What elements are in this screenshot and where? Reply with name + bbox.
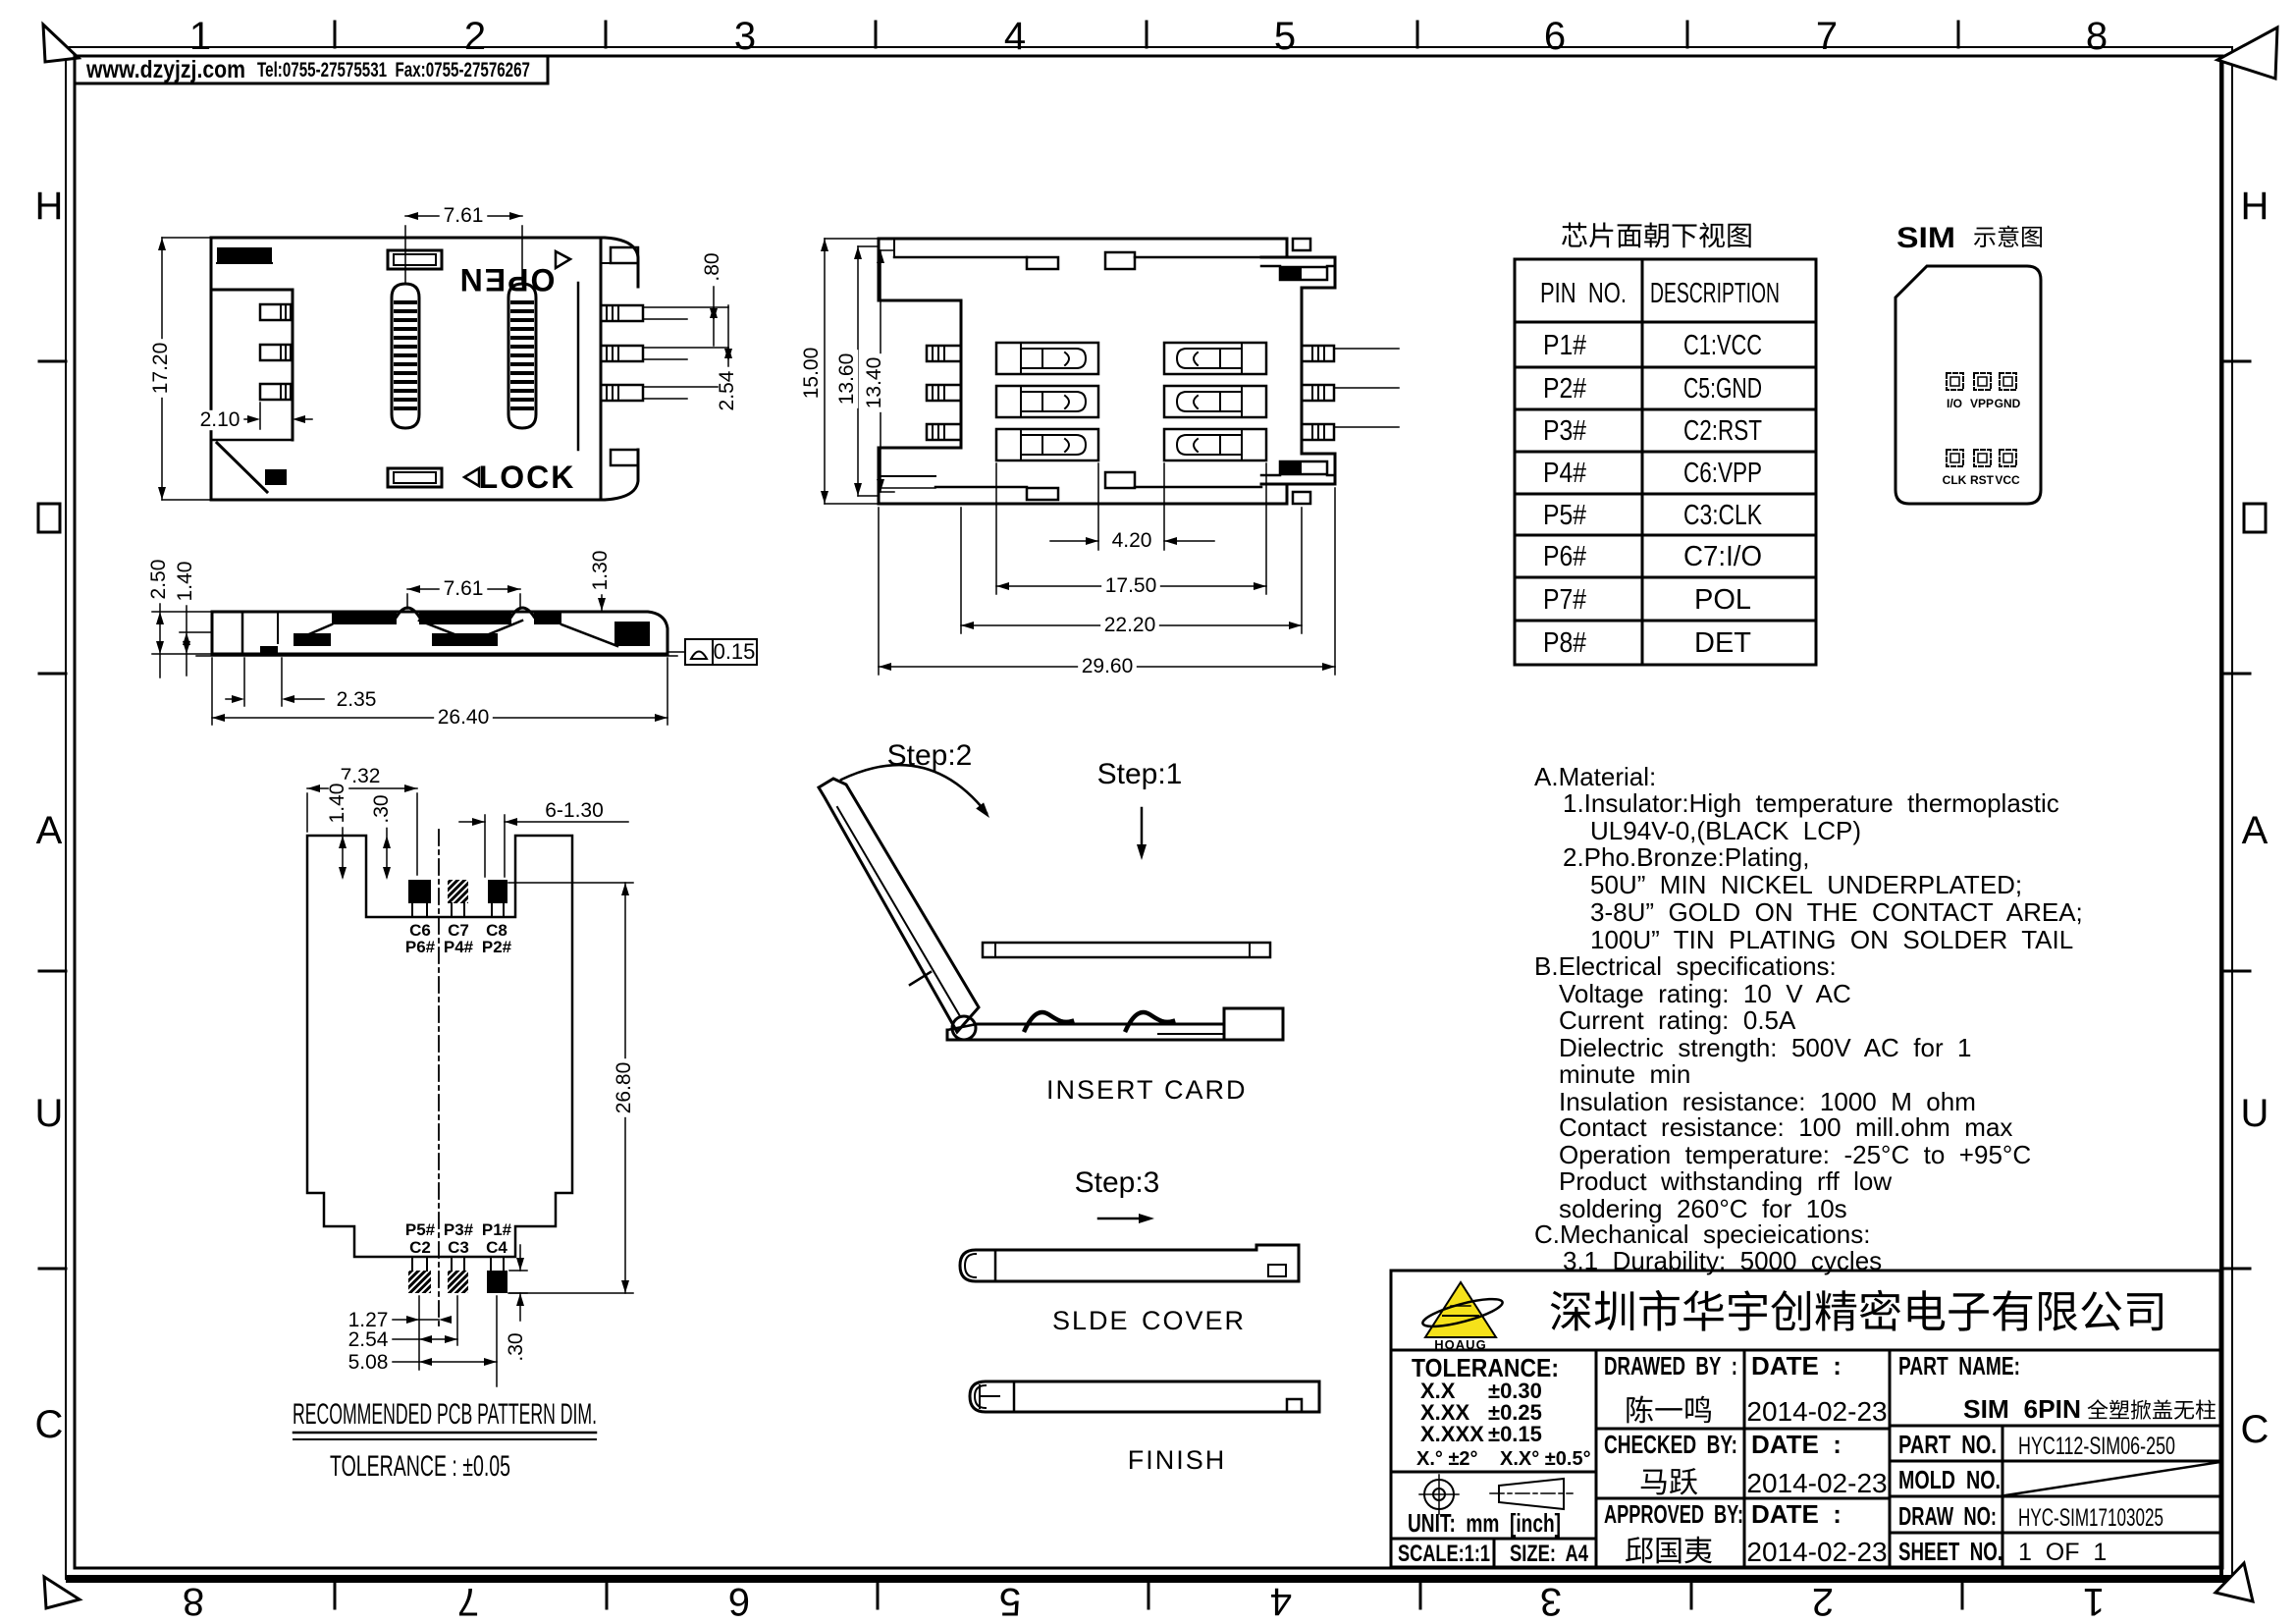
svg-text:APPROVED BY:: APPROVED BY: [1604,1499,1743,1529]
svg-text:3-8U” GOLD ON THE CONTACT: 3-8U” GOLD ON THE CONTACT AREA; [1590,897,2083,927]
svg-text:Product withstanding rff lo: Product withstanding rff low [1559,1166,1892,1196]
svg-text:U: U [35,1092,64,1135]
svg-text:CARD: CARD [1164,1075,1248,1105]
svg-text:3: 3 [734,15,756,58]
svg-text:7.61: 7.61 [444,204,484,227]
svg-text:C3:CLK: C3:CLK [1683,500,1763,531]
svg-text:LOCK: LOCK [479,460,576,495]
svg-text:OPEN: OPEN [458,262,556,298]
svg-text:A.Material:: A.Material: [1534,762,1656,791]
svg-text:PART NAME:: PART NAME: [1898,1351,2020,1380]
svg-text:5.08: 5.08 [348,1351,389,1374]
svg-text:1.30: 1.30 [589,551,612,591]
svg-text:PART NO.: PART NO. [1898,1430,1997,1459]
svg-text:2014-02-23: 2014-02-23 [1746,1537,1887,1567]
svg-text:POL: POL [1694,584,1751,616]
svg-text:Step:3: Step:3 [1075,1166,1160,1199]
svg-text:3: 3 [1540,1580,1562,1623]
svg-text:6: 6 [1544,15,1566,58]
svg-text:2: 2 [464,15,486,58]
svg-text:50U” MIN NICKEL UNDERPLATED: 50U” MIN NICKEL UNDERPLATED; [1590,870,2022,899]
svg-text:SIZE: A4: SIZE: A4 [1510,1541,1588,1567]
svg-text:C1:VCC: C1:VCC [1683,330,1762,361]
svg-text:17.50: 17.50 [1105,574,1157,597]
svg-text:4.20: 4.20 [1112,529,1152,552]
svg-text:UL94V-0,(BLACK LCP): UL94V-0,(BLACK LCP) [1590,816,1861,845]
svg-text:1.40: 1.40 [326,784,348,824]
svg-text:13.40: 13.40 [863,357,885,409]
svg-text:SIM 6PIN: SIM 6PIN [1963,1394,2081,1424]
svg-text:6-1.30: 6-1.30 [545,799,604,822]
svg-text:TOLERANCE : ±0.05: TOLERANCE : ±0.05 [330,1450,510,1483]
svg-text:A: A [2242,809,2269,852]
svg-text:P8#: P8# [1543,627,1586,659]
svg-text:26.40: 26.40 [438,706,490,729]
svg-text:X.° ±2°: X.° ±2° [1416,1448,1478,1470]
svg-text:P5#: P5# [1543,500,1586,531]
svg-text:8: 8 [2086,15,2108,58]
svg-text:HOAUG: HOAUG [1434,1337,1486,1352]
svg-text:5: 5 [999,1580,1021,1623]
svg-text:H: H [35,185,64,228]
svg-text:HYC112-SIM06-250: HYC112-SIM06-250 [2018,1433,2175,1460]
svg-text:H: H [2241,185,2269,228]
svg-text:P3#: P3# [444,1220,474,1239]
svg-text:6: 6 [728,1580,750,1623]
svg-text:P5#: P5# [405,1220,436,1239]
svg-text:15.00: 15.00 [800,348,823,400]
svg-text:C3: C3 [448,1238,469,1257]
svg-text:2.35: 2.35 [337,688,377,711]
svg-text:X.X° ±0.5°: X.X° ±0.5° [1500,1448,1591,1470]
svg-text:GND: GND [1995,397,2021,410]
svg-text:Dielectric strength: 500V A: Dielectric strength: 500V AC for 1 [1559,1033,1972,1062]
svg-text:www.dzyjzj.com: www.dzyjzj.com [85,56,245,83]
svg-text:DRAWED BY :: DRAWED BY : [1604,1351,1737,1380]
svg-text:4: 4 [1270,1580,1292,1623]
svg-text:2: 2 [1812,1580,1834,1623]
svg-text:P6#: P6# [1543,541,1586,572]
svg-text:SCALE:1:1: SCALE:1:1 [1398,1541,1490,1567]
svg-text:26.80: 26.80 [613,1062,635,1114]
svg-text:Current rating: 0.5A: Current rating: 0.5A [1559,1005,1796,1035]
svg-text:DESCRIPTION: DESCRIPTION [1650,278,1780,309]
svg-text:C.Mechanical specieications:: C.Mechanical specieications: [1534,1219,1871,1249]
svg-text:I/O: I/O [1947,397,1962,410]
svg-text:X.XXX: X.XXX [1420,1422,1484,1446]
svg-text:DRAW NO:: DRAW NO: [1898,1501,1997,1531]
svg-text:7: 7 [1816,15,1838,58]
svg-text:P6#: P6# [405,938,436,956]
svg-text:VPP: VPP [1970,397,1994,410]
svg-text:P1#: P1# [482,1220,512,1239]
svg-text:CLK: CLK [1943,473,1967,487]
svg-text:1: 1 [189,15,211,58]
svg-text:INSERT: INSERT [1046,1075,1155,1105]
svg-text:HYC-SIM17103025: HYC-SIM17103025 [2018,1504,2163,1532]
svg-text:4: 4 [1004,15,1026,58]
svg-text:C: C [2241,1408,2269,1451]
svg-text:17.20: 17.20 [149,343,172,395]
svg-text:2.54: 2.54 [716,370,738,410]
svg-text:2014-02-23: 2014-02-23 [1746,1396,1887,1427]
svg-text:2014-02-23: 2014-02-23 [1746,1468,1887,1498]
svg-text:1.Insulator:High temperature: 1.Insulator:High temperature thermoplast… [1563,788,2059,818]
svg-text:SIM: SIM [1896,222,1955,254]
svg-text:SHEET NO.: SHEET NO. [1898,1537,2002,1566]
svg-text:COVER: COVER [1142,1306,1246,1335]
svg-text:minute min: minute min [1559,1059,1690,1089]
svg-text:P3#: P3# [1543,415,1586,447]
svg-text:1 OF 1: 1 OF 1 [2018,1539,2107,1566]
svg-text:C: C [35,1403,64,1446]
svg-text:Step:1: Step:1 [1097,758,1183,790]
svg-text:8: 8 [183,1580,204,1623]
svg-text:RECOMMENDED PCB PATTERN DIM.: RECOMMENDED PCB PATTERN DIM. [293,1398,597,1431]
svg-text:C2: C2 [409,1238,431,1257]
svg-text:C4: C4 [486,1238,507,1257]
svg-text:UNIT: mm [inch]: UNIT: mm [inch] [1408,1508,1561,1538]
svg-text:7: 7 [457,1580,479,1623]
svg-text:DATE :: DATE : [1751,1499,1842,1529]
svg-text:DATE :: DATE : [1751,1351,1842,1380]
svg-text:A: A [36,809,63,852]
svg-text:C7:I/O: C7:I/O [1683,541,1762,572]
svg-text:13.60: 13.60 [835,353,858,406]
svg-text:SLDE: SLDE [1052,1306,1130,1335]
svg-text:Operation temperature: -25°C: Operation temperature: -25°C to +95°C [1559,1140,2031,1169]
svg-text:.80: .80 [701,252,723,281]
svg-text:±0.15: ±0.15 [1488,1422,1542,1446]
svg-text:C2:RST: C2:RST [1683,415,1762,447]
svg-text:B.Electrical specifications:: B.Electrical specifications: [1534,951,1837,981]
svg-text:C5:GND: C5:GND [1683,373,1762,405]
svg-text:2.54: 2.54 [348,1328,389,1351]
svg-text:FINISH: FINISH [1128,1445,1227,1475]
svg-text:DET: DET [1694,627,1751,659]
svg-text:5: 5 [1274,15,1296,58]
svg-text:29.60: 29.60 [1082,655,1134,677]
svg-text:P2#: P2# [1543,373,1586,405]
svg-text:C6:VPP: C6:VPP [1683,458,1762,489]
svg-text:1: 1 [2083,1580,2105,1623]
svg-text:P4#: P4# [444,938,474,956]
svg-text:CHECKED BY:: CHECKED BY: [1604,1430,1737,1459]
svg-text:2.10: 2.10 [200,408,240,431]
svg-text:VCC: VCC [1995,473,2020,487]
svg-text:P1#: P1# [1543,330,1586,361]
svg-text:P4#: P4# [1543,458,1586,489]
svg-text:P2#: P2# [482,938,512,956]
svg-text:DATE :: DATE : [1751,1430,1842,1459]
svg-text:Tel:0755-27575531 Fax:0755-27: Tel:0755-27575531 Fax:0755-27576267 [257,59,530,81]
svg-text:Contact resistance: 100 mil: Contact resistance: 100 mill.ohm max [1559,1112,2012,1142]
svg-text:0.15: 0.15 [714,639,756,664]
svg-text:7.61: 7.61 [444,577,484,600]
svg-text:1.40: 1.40 [174,562,196,602]
svg-text:PIN NO.: PIN NO. [1540,278,1627,309]
svg-text:.30: .30 [370,794,393,823]
svg-text:Step:2: Step:2 [887,739,973,772]
svg-text:100U” TIN PLATING ON SOLDE: 100U” TIN PLATING ON SOLDER TAIL [1590,925,2073,954]
svg-text:RST: RST [1970,473,1995,487]
svg-text:.30: .30 [505,1332,527,1361]
svg-text:U: U [2241,1092,2269,1135]
svg-text:P7#: P7# [1543,584,1586,616]
svg-text:Voltage rating: 10 V AC: Voltage rating: 10 V AC [1559,979,1851,1008]
svg-text:MOLD NO.: MOLD NO. [1898,1465,2001,1494]
svg-text:2.50: 2.50 [147,560,170,600]
svg-text:22.20: 22.20 [1104,614,1156,636]
svg-text:2.Pho.Bronze:Plating,: 2.Pho.Bronze:Plating, [1563,842,1810,872]
